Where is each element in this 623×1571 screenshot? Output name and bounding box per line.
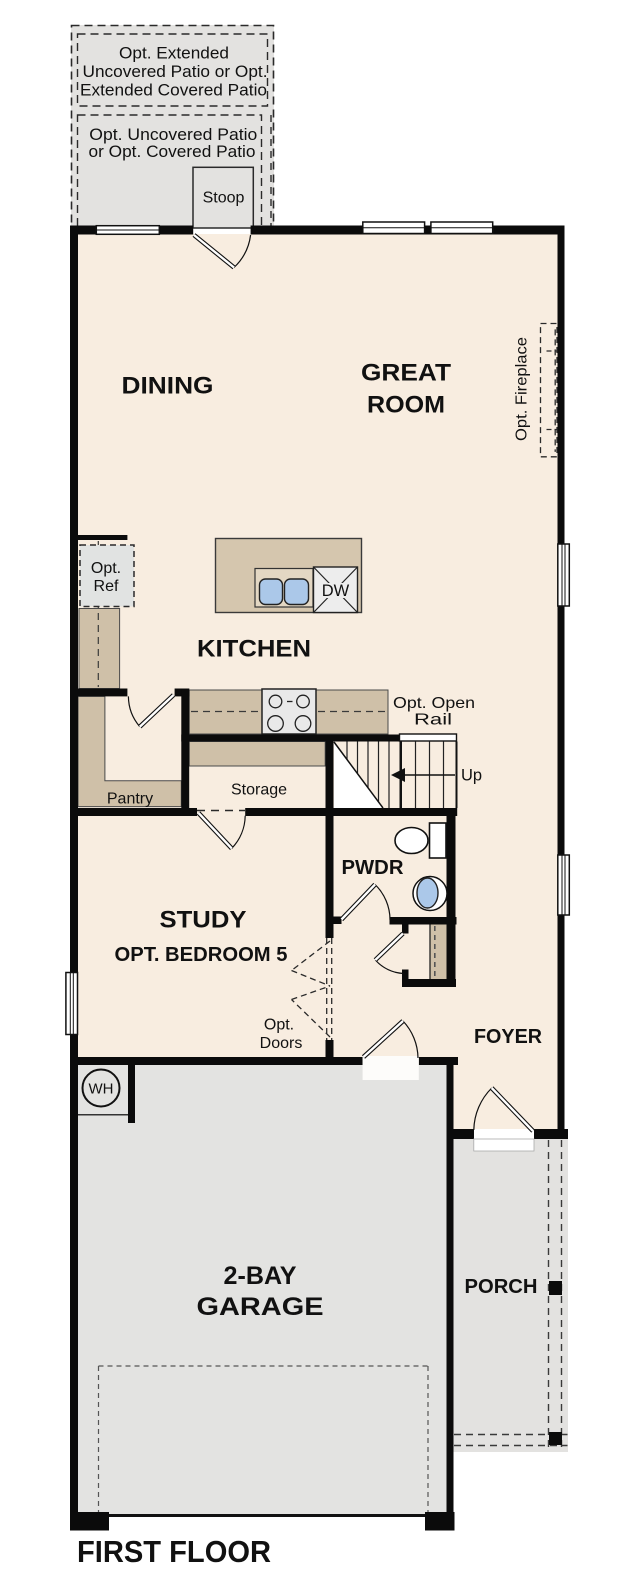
svg-text:KITCHEN: KITCHEN	[197, 636, 311, 663]
svg-text:Opt.: Opt.	[264, 1017, 294, 1034]
svg-text:FIRST FLOOR: FIRST FLOOR	[77, 1534, 271, 1569]
svg-text:WH: WH	[89, 1081, 114, 1098]
svg-text:OPT. BEDROOM 5: OPT. BEDROOM 5	[115, 944, 288, 966]
svg-text:Opt. Uncovered Patio: Opt. Uncovered Patio	[89, 126, 257, 144]
svg-text:Stoop: Stoop	[203, 190, 245, 207]
svg-text:Extended Covered Patio: Extended Covered Patio	[80, 82, 267, 100]
svg-text:Opt. Fireplace: Opt. Fireplace	[514, 337, 531, 441]
svg-text:Ref: Ref	[94, 578, 119, 595]
svg-text:FOYER: FOYER	[474, 1026, 543, 1048]
svg-text:DW: DW	[322, 582, 350, 600]
svg-text:2-BAY: 2-BAY	[224, 1262, 297, 1290]
svg-text:Rail: Rail	[414, 712, 452, 729]
svg-text:STUDY: STUDY	[160, 907, 247, 934]
svg-text:PWDR: PWDR	[342, 857, 405, 879]
svg-text:Up: Up	[461, 767, 482, 785]
svg-text:or Opt. Covered Patio: or Opt. Covered Patio	[89, 143, 256, 161]
svg-text:Uncovered Patio or Opt.: Uncovered Patio or Opt.	[83, 63, 268, 81]
svg-text:Opt. Extended: Opt. Extended	[119, 45, 229, 63]
svg-text:Opt.: Opt.	[91, 560, 121, 577]
svg-text:Pantry: Pantry	[107, 791, 153, 808]
svg-text:PORCH: PORCH	[465, 1276, 538, 1298]
svg-text:ROOM: ROOM	[367, 392, 445, 419]
svg-text:GARAGE: GARAGE	[197, 1293, 324, 1321]
svg-text:Opt. Open: Opt. Open	[393, 695, 475, 712]
svg-text:Doors: Doors	[260, 1035, 303, 1052]
svg-text:GREAT: GREAT	[361, 360, 451, 387]
svg-text:DINING: DINING	[122, 373, 214, 400]
svg-text:Storage: Storage	[231, 782, 287, 799]
